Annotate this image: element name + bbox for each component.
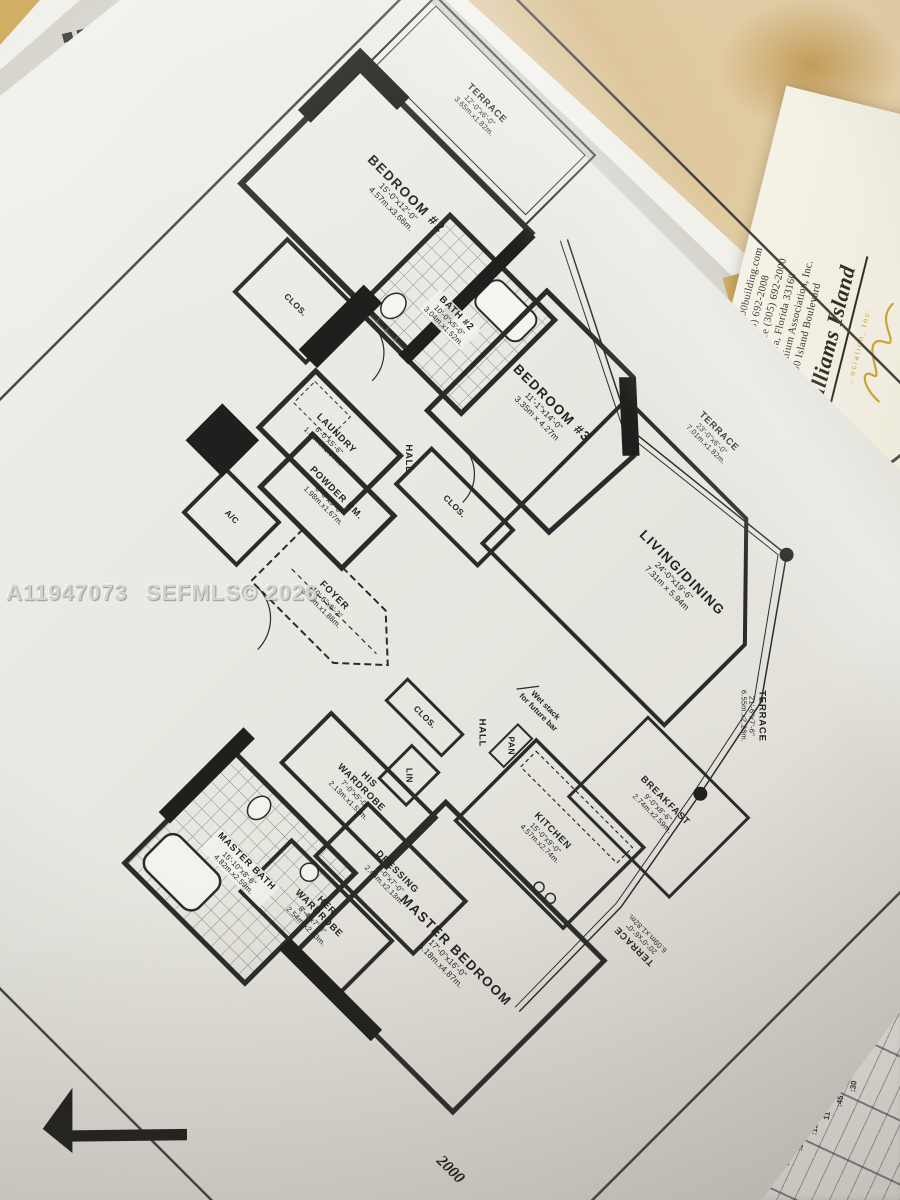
mls-watermark: A11947073 SEFMLS© 2026 [6,580,318,606]
mls-stamp: SEFMLS© 2026 [146,580,319,606]
floor-plan-photo: mmonsanto@2000building.com Fax: (305) 69… [0,0,900,1200]
listing-id: A11947073 [6,580,128,606]
